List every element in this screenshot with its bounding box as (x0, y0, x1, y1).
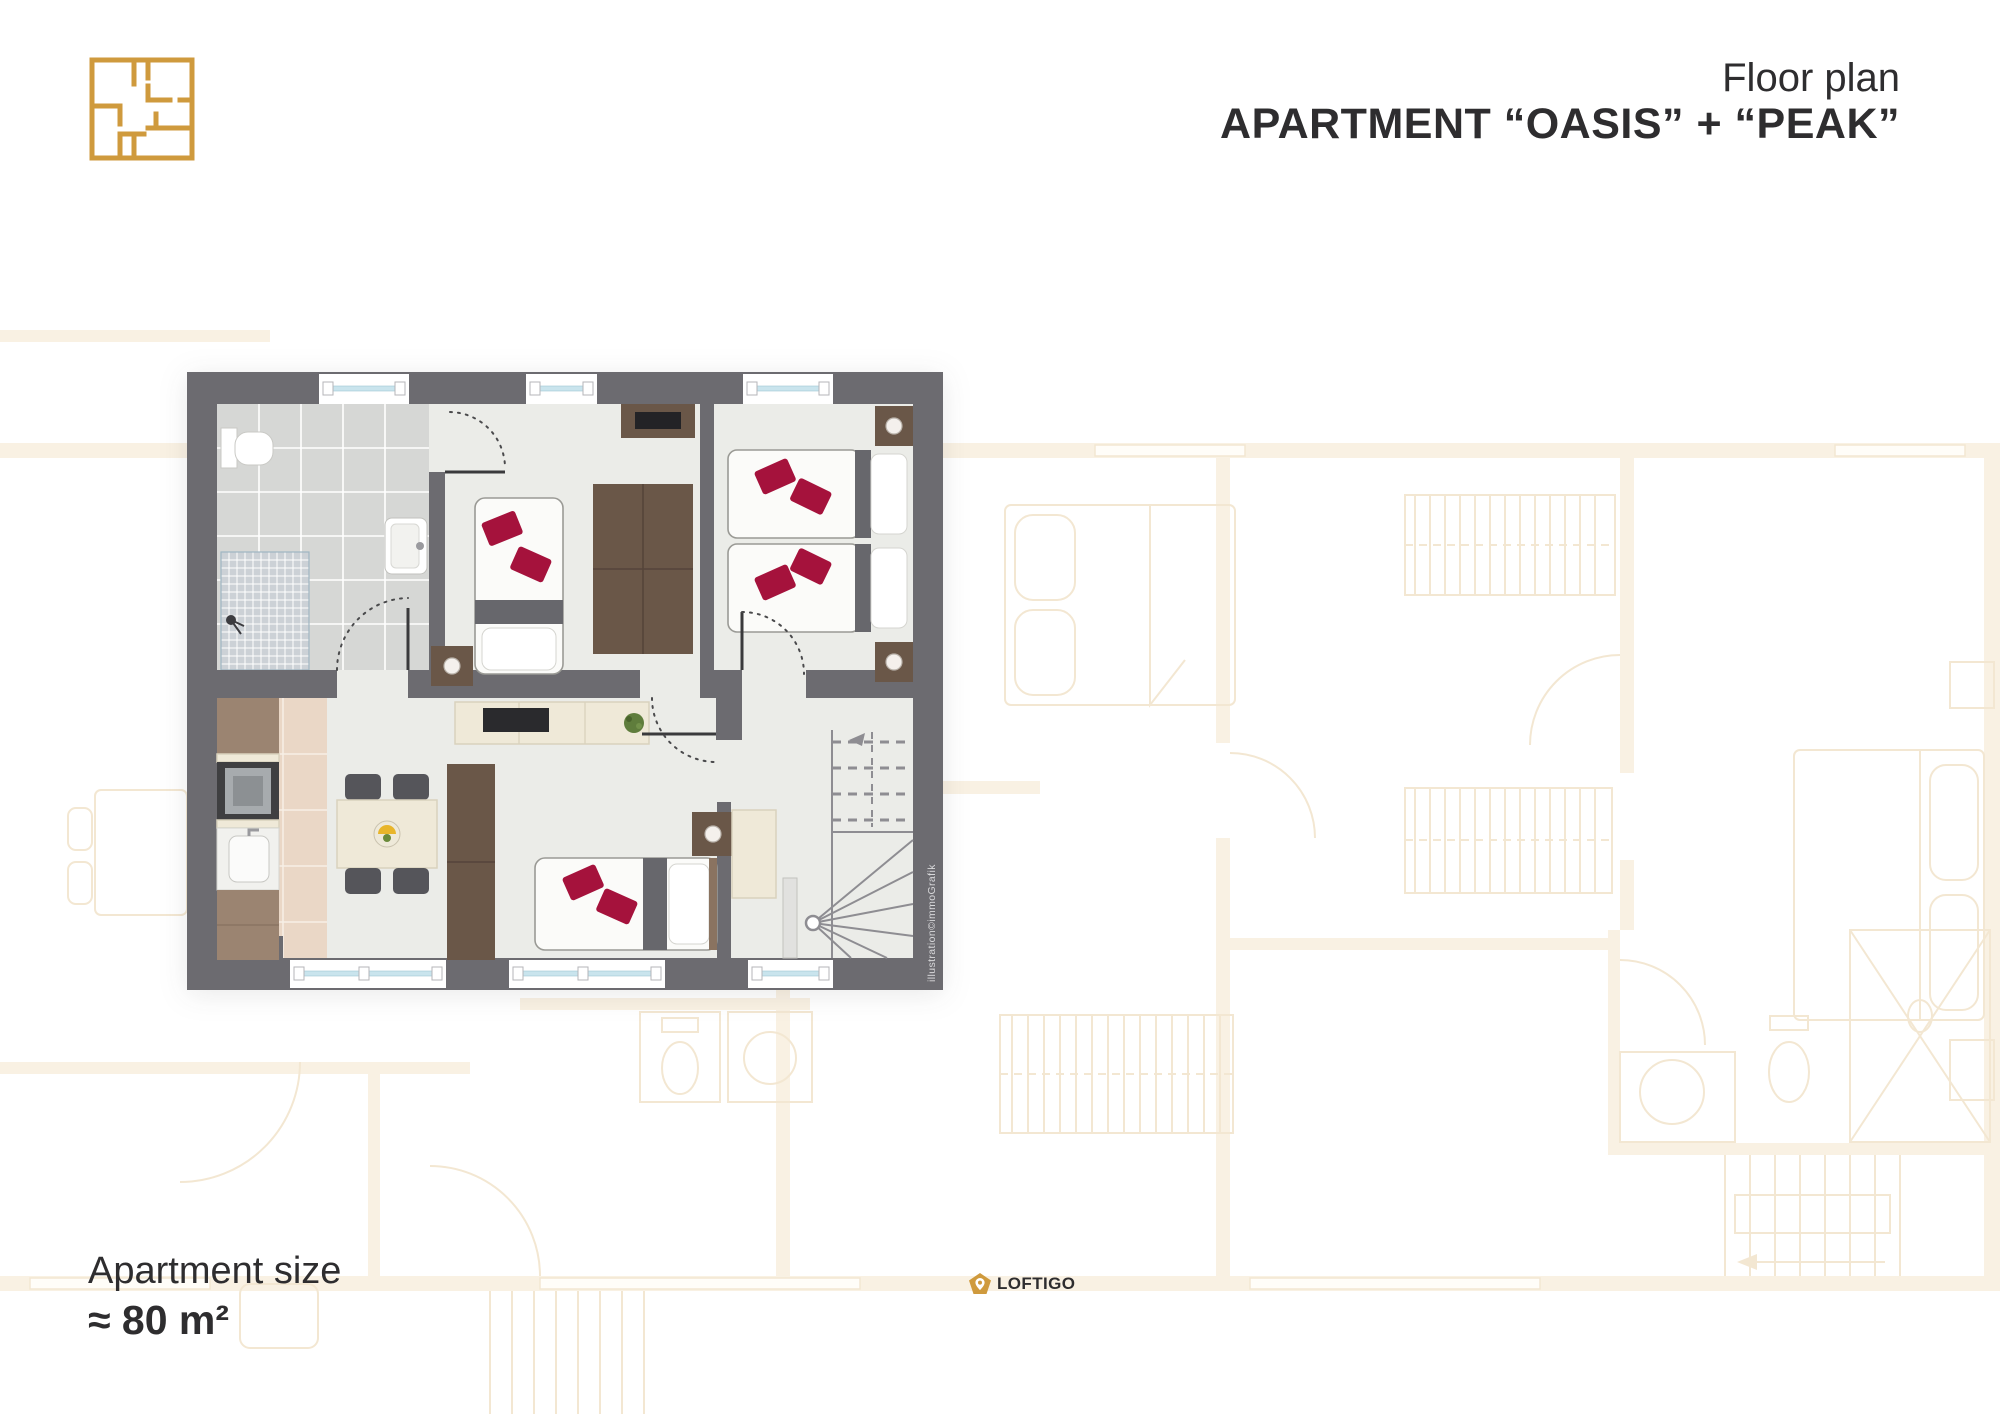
plant (624, 713, 644, 733)
hall-bench (732, 810, 776, 898)
apartment-size-block: Apartment size ≈ 80 m² (88, 1250, 341, 1344)
chair (345, 868, 381, 894)
bg-wardrobe (1000, 1015, 1233, 1133)
sideboard (455, 702, 649, 744)
apartment-size-label: Apartment size (88, 1250, 341, 1293)
header-titles: Floor plan APARTMENT “OASIS” + “PEAK” (1220, 56, 1900, 149)
chair (345, 774, 381, 800)
bg-bed (1005, 505, 1235, 705)
chair (393, 868, 429, 894)
bg-stairs-right (1725, 1155, 1900, 1276)
bg-wardrobe (1405, 788, 1612, 893)
floor-plan-page: Floor plan APARTMENT “OASIS” + “PEAK” (0, 0, 2000, 1414)
bg-bed (1794, 662, 1994, 1100)
shower-area (221, 552, 309, 670)
tv (483, 708, 549, 732)
lamp (444, 658, 460, 674)
shield-location-pin-icon (968, 1272, 992, 1296)
illustration-credit: illustration©immoGrafik (926, 864, 938, 982)
window (290, 960, 833, 988)
lamp (705, 826, 721, 842)
bg-bathroom-right (1620, 930, 1990, 1142)
single-bed (728, 544, 860, 632)
apartment-size-value: ≈ 80 m² (88, 1297, 341, 1344)
brand-mark: LOFTIGO (968, 1272, 1075, 1296)
page-title: APARTMENT “OASIS” + “PEAK” (1220, 100, 1900, 149)
floorplan-logo-icon (86, 54, 198, 164)
kitchen-counter (217, 698, 279, 960)
bg-wardrobe (1405, 495, 1615, 595)
lamp (886, 654, 902, 670)
window (319, 374, 833, 404)
sink (385, 518, 427, 574)
lamp (886, 418, 902, 434)
toilet (221, 428, 273, 468)
apartment-floorplan: illustration©immoGrafik (187, 372, 943, 990)
brand-name: LOFTIGO (997, 1274, 1075, 1294)
chair (393, 774, 429, 800)
page-subtitle: Floor plan (1220, 56, 1900, 100)
